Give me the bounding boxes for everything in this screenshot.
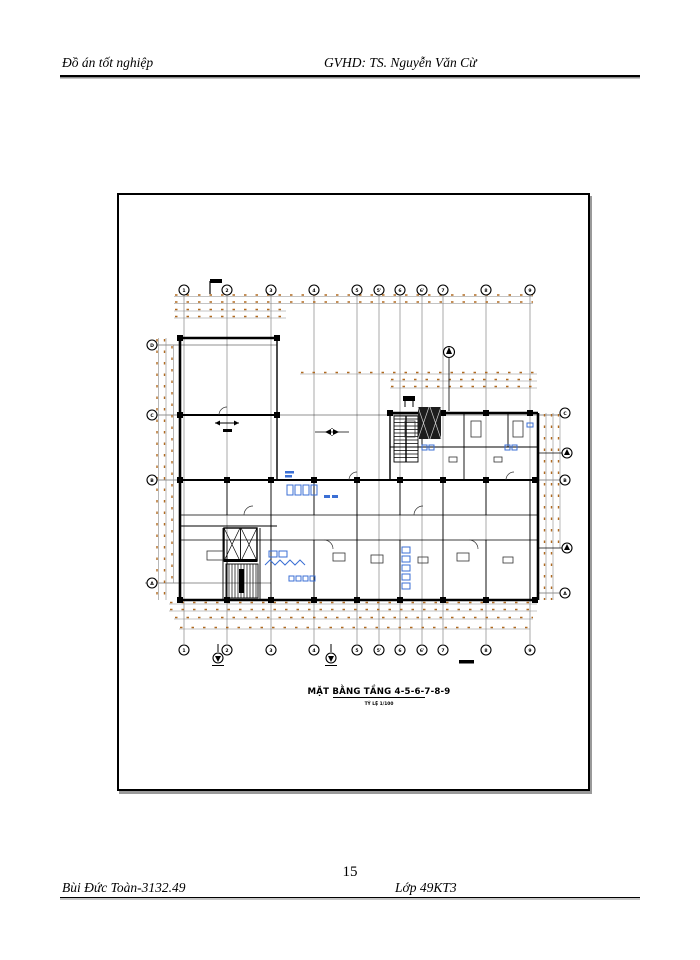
grid-bubble-label: 3 bbox=[269, 288, 272, 294]
floor-plan-drawing: 11223344555'5'666'6'778899DCBACBA MẶT BẰ… bbox=[119, 195, 588, 789]
grid-bubble-label: 9 bbox=[528, 648, 531, 654]
grid-bubble-label: 2 bbox=[225, 288, 228, 294]
direction-arrows-icon bbox=[315, 428, 349, 436]
grid-bubble-label: 7 bbox=[441, 288, 444, 294]
grid-bubble-label: B bbox=[150, 478, 154, 484]
column-marker bbox=[177, 335, 183, 341]
drawing-subtitle: TỶ LỆ 1/100 bbox=[365, 699, 394, 707]
column-marker bbox=[177, 477, 183, 483]
footer-left-text: Bùi Đức Toàn-3132.49 bbox=[62, 880, 186, 896]
column-marker bbox=[532, 477, 538, 483]
grid-bubble-label: 5' bbox=[377, 288, 382, 294]
grid-bubble-label: 7 bbox=[441, 648, 444, 654]
grid-bubble-label: A bbox=[150, 581, 154, 587]
grid-bubble-label: A bbox=[563, 591, 567, 597]
plumbing-fixtures bbox=[265, 423, 533, 589]
column-marker bbox=[440, 477, 446, 483]
grid-bubble-label: B bbox=[563, 478, 567, 484]
row-leader-lines bbox=[145, 345, 565, 593]
level-marker-icon bbox=[403, 396, 415, 407]
column-marker bbox=[387, 410, 393, 416]
section-arrow-icon bbox=[538, 543, 572, 553]
grid-bubble-label: 1 bbox=[182, 648, 185, 654]
grid-bubble-label: 5' bbox=[377, 648, 382, 654]
column-marker bbox=[177, 412, 183, 418]
furniture bbox=[207, 407, 523, 563]
column-marker bbox=[274, 335, 280, 341]
column-marker bbox=[354, 477, 360, 483]
document-page: Đồ án tốt nghiệp GVHD: TS. Nguyễn Văn Cừ bbox=[0, 0, 700, 960]
grid-bubble-label: 8 bbox=[484, 288, 487, 294]
grid-bubble-label: 5 bbox=[355, 648, 358, 654]
columns bbox=[177, 335, 538, 603]
grid-bubble-label: 6' bbox=[420, 288, 425, 294]
floor-plan-frame: 11223344555'5'666'6'778899DCBACBA MẶT BẰ… bbox=[117, 193, 590, 791]
column-marker bbox=[532, 597, 538, 603]
grid-bubble-label: 4 bbox=[312, 288, 315, 294]
grid-bubble-label: 4 bbox=[312, 648, 315, 654]
column-marker bbox=[397, 597, 403, 603]
column-marker bbox=[483, 597, 489, 603]
grid-bubble-label: 6 bbox=[398, 288, 401, 294]
column-marker bbox=[274, 412, 280, 418]
grid-bubble-label: 6 bbox=[398, 648, 401, 654]
section-arrow-icon bbox=[444, 347, 455, 412]
column-marker bbox=[527, 410, 533, 416]
page-number: 15 bbox=[0, 864, 700, 881]
scale-bar bbox=[459, 660, 474, 664]
column-marker bbox=[354, 597, 360, 603]
footer-right-text: Lớp 49KT3 bbox=[395, 880, 457, 896]
column-marker bbox=[311, 477, 317, 483]
grid-bubble-label: 5 bbox=[355, 288, 358, 294]
drawing-title: MẶT BẰNG TẦNG 4-5-6-7-8-9 bbox=[308, 684, 451, 697]
grid-bubble-label: 2 bbox=[225, 648, 228, 654]
header-rule bbox=[60, 75, 640, 77]
column-marker bbox=[483, 477, 489, 483]
grid-bubble-label: 9 bbox=[528, 288, 531, 294]
flag-marker-icon bbox=[210, 279, 222, 294]
column-marker bbox=[177, 597, 183, 603]
grid-bubble-label: 1 bbox=[182, 288, 185, 294]
column-marker bbox=[268, 477, 274, 483]
grid-bubble-label: 3 bbox=[269, 648, 272, 654]
grid-bubble-label: 8 bbox=[484, 648, 487, 654]
section-arrow-icon bbox=[325, 644, 337, 666]
column-marker bbox=[224, 477, 230, 483]
header-right-text: GVHD: TS. Nguyễn Văn Cừ bbox=[324, 55, 476, 71]
column-marker bbox=[397, 477, 403, 483]
footer-rule bbox=[60, 897, 640, 898]
header-left-text: Đồ án tốt nghiệp bbox=[62, 55, 153, 71]
grid-bubble-label: D bbox=[150, 343, 154, 349]
column-marker bbox=[483, 410, 489, 416]
column-marker bbox=[311, 597, 317, 603]
column-marker bbox=[268, 597, 274, 603]
grid-bubble-label: 6' bbox=[420, 648, 425, 654]
section-arrow-icon bbox=[538, 448, 572, 458]
column-marker bbox=[440, 597, 446, 603]
drawing-title-block: MẶT BẰNG TẦNG 4-5-6-7-8-9 TỶ LỆ 1/100 bbox=[308, 684, 451, 707]
